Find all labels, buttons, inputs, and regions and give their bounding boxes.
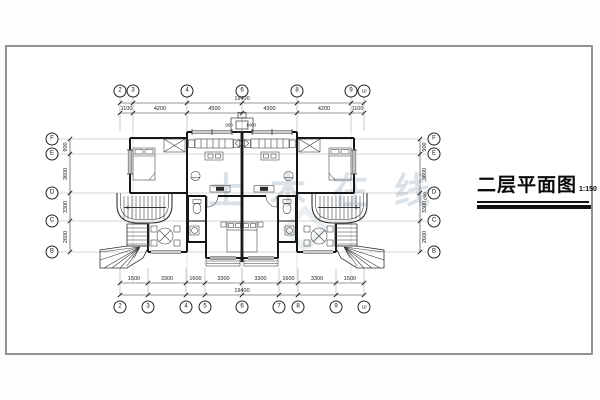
dwelling-unit-right <box>241 129 384 268</box>
title-underline-thick <box>477 205 591 209</box>
plan-linework <box>100 113 384 269</box>
stairs <box>100 193 172 268</box>
drawing-title-block: 二层平面图1:150 <box>477 176 593 209</box>
drawing-title: 二层平面图 <box>477 175 577 196</box>
walls <box>130 132 243 262</box>
cad-viewer-canvas: 土木在线 <box>0 0 600 400</box>
title-underline <box>477 201 589 203</box>
dwelling-unit-left <box>100 129 243 268</box>
drawing-scale: 1:150 <box>579 186 597 193</box>
